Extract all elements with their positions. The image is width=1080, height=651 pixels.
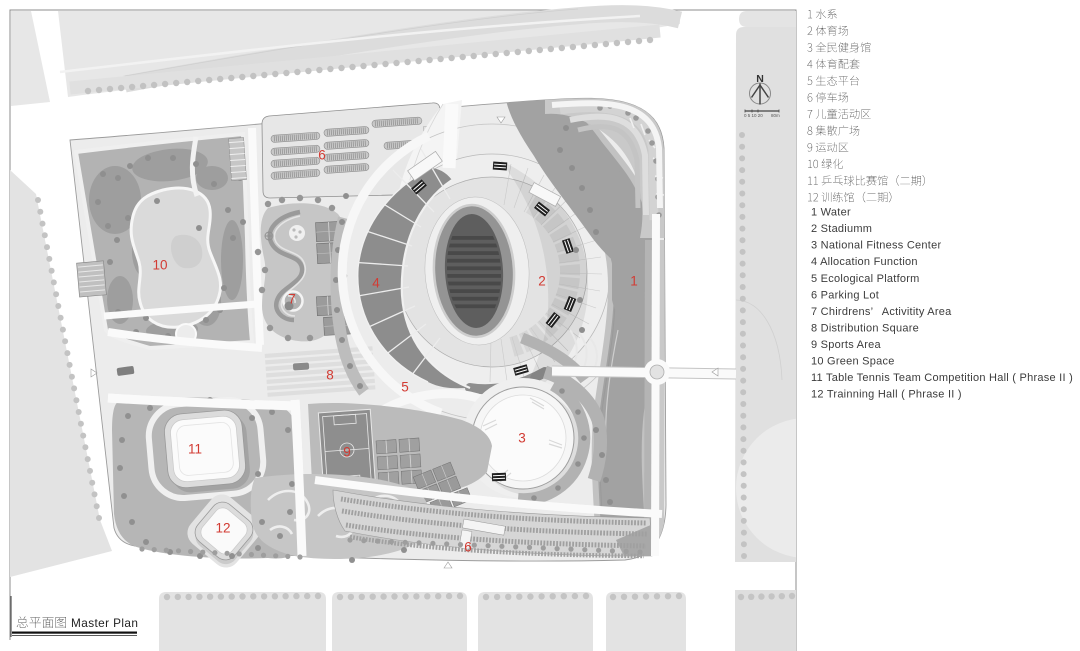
svg-text:10: 10: [152, 258, 167, 273]
svg-text:12 Trainning Hall ( Phrase II: 12 Trainning Hall ( Phrase II ): [811, 389, 962, 401]
svg-text:3: 3: [518, 431, 526, 446]
svg-text:11 Table Tennis Team Competiti: 11 Table Tennis Team Competition Hall ( …: [811, 372, 1073, 384]
svg-text:1: 1: [630, 274, 638, 289]
svg-text:9 Sports Area: 9 Sports Area: [811, 339, 882, 351]
svg-text:Master Plan: Master Plan: [71, 616, 138, 630]
svg-text:0 5 10 20: 0 5 10 20: [744, 113, 763, 118]
svg-text:2 Stadiumm: 2 Stadiumm: [811, 223, 872, 235]
svg-text:10 Green Space: 10 Green Space: [811, 356, 895, 368]
svg-text:3 National Fitness Center: 3 National Fitness Center: [811, 240, 941, 252]
svg-text:9: 9: [343, 445, 351, 460]
svg-text:5 Ecological Platform: 5 Ecological Platform: [811, 273, 920, 285]
svg-text:2: 2: [538, 274, 546, 289]
svg-text:7 Chirdrens’ Activitity Area: 7 Chirdrens’ Activitity Area: [811, 306, 952, 318]
svg-text:6: 6: [318, 148, 326, 163]
svg-text:80m: 80m: [771, 113, 780, 118]
svg-text:7: 7: [288, 292, 296, 307]
svg-text:6 Parking Lot: 6 Parking Lot: [811, 289, 879, 301]
svg-text:8: 8: [326, 368, 334, 383]
svg-text:8 Distribution Square: 8 Distribution Square: [811, 322, 919, 334]
svg-text:4: 4: [372, 276, 380, 291]
svg-text:6: 6: [464, 540, 472, 555]
svg-text:11: 11: [188, 442, 202, 457]
svg-text:12: 12: [215, 521, 230, 536]
svg-text:5: 5: [401, 380, 409, 395]
svg-text:1 Water: 1 Water: [811, 207, 851, 219]
svg-text:4 Allocation Function: 4 Allocation Function: [811, 256, 918, 268]
svg-text:N: N: [756, 73, 764, 85]
